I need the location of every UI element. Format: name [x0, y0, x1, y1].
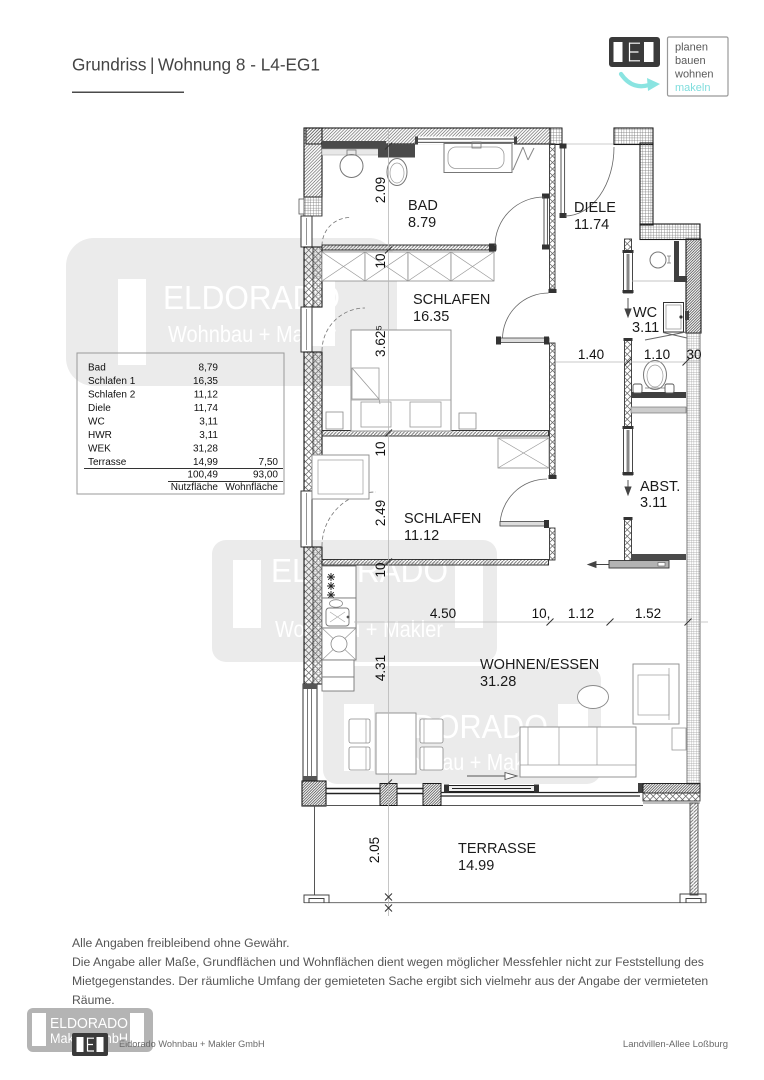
svg-text:wohnen: wohnen [674, 69, 714, 81]
svg-text:BAD: BAD [408, 198, 438, 214]
svg-text:2.09: 2.09 [373, 177, 388, 203]
svg-text:3.11: 3.11 [632, 320, 659, 336]
svg-text:Diele: Diele [88, 403, 111, 414]
svg-text:3.62⁵: 3.62⁵ [373, 325, 388, 357]
svg-text:100,49: 100,49 [187, 470, 218, 481]
svg-text:ELDORADO: ELDORADO [50, 1016, 128, 1032]
svg-text:2.05: 2.05 [367, 837, 382, 863]
svg-text:Wohnbau + Makler: Wohnbau + Makler [275, 616, 443, 642]
svg-text:Landvillen-Allee Loßburg: Landvillen-Allee Loßburg [623, 1039, 728, 1050]
svg-text:Schlafen 2: Schlafen 2 [88, 390, 136, 401]
svg-text:11,74: 11,74 [194, 403, 219, 414]
svg-text:8.79: 8.79 [408, 215, 436, 231]
svg-text:93,00: 93,00 [253, 470, 278, 481]
svg-text:4.31: 4.31 [373, 655, 388, 681]
svg-text:SCHLAFEN: SCHLAFEN [404, 511, 481, 527]
svg-text:3,11: 3,11 [199, 417, 218, 428]
svg-text:ABST.: ABST. [640, 479, 680, 495]
svg-text:3.11: 3.11 [640, 495, 667, 511]
svg-text:Eldorado Wohnbau + Makler GmbH: Eldorado Wohnbau + Makler GmbH [119, 1039, 265, 1049]
svg-text:makeln: makeln [675, 82, 710, 94]
svg-text:1.12: 1.12 [568, 606, 594, 621]
svg-text:11.74: 11.74 [574, 217, 609, 233]
svg-text:Schlafen 1: Schlafen 1 [88, 376, 136, 387]
svg-text:14.99: 14.99 [458, 858, 494, 874]
svg-text:Bad: Bad [88, 363, 106, 374]
svg-text:planen: planen [675, 42, 708, 54]
svg-text:HWR: HWR [88, 430, 112, 441]
svg-text:Grundriss | Wohnung 8 - L4-EG1: Grundriss | Wohnung 8 - L4-EG1 [72, 55, 320, 75]
svg-text:SCHLAFEN: SCHLAFEN [413, 292, 490, 308]
svg-text:WOHNEN/ESSEN: WOHNEN/ESSEN [480, 657, 599, 673]
svg-text:Alle Angaben freibleibend ohne: Alle Angaben freibleibend ohne Gewähr. [72, 936, 290, 950]
svg-text:31.28: 31.28 [480, 674, 516, 690]
svg-text:1.10: 1.10 [644, 347, 670, 362]
svg-text:30: 30 [686, 347, 701, 362]
svg-text:bauen: bauen [675, 55, 706, 67]
svg-text:WEK: WEK [88, 444, 111, 455]
svg-text:Terrasse: Terrasse [88, 457, 127, 468]
svg-text:14,99: 14,99 [193, 457, 218, 468]
svg-text:16,35: 16,35 [193, 376, 218, 387]
svg-text:11.12: 11.12 [404, 528, 439, 544]
svg-text:10: 10 [373, 562, 388, 577]
svg-text:11,12: 11,12 [194, 390, 219, 401]
svg-text:WC: WC [88, 417, 105, 428]
svg-text:10: 10 [373, 441, 388, 456]
svg-text:1.40: 1.40 [578, 347, 604, 362]
svg-text:Die Angabe aller Maße, Grundfl: Die Angabe aller Maße, Grundflächen und … [72, 955, 704, 969]
svg-text:10: 10 [373, 253, 388, 268]
svg-text:TERRASSE: TERRASSE [458, 841, 536, 857]
svg-text:16.35: 16.35 [413, 309, 449, 325]
svg-text:ELDORADO: ELDORADO [271, 552, 448, 589]
svg-text:Räume.: Räume. [72, 993, 115, 1007]
svg-text:10,: 10, [532, 606, 551, 621]
svg-text:2.49: 2.49 [373, 500, 388, 526]
svg-text:Mietgegenstandes. Der räumlich: Mietgegenstandes. Der räumliche Umfang d… [72, 974, 708, 988]
svg-text:4.50: 4.50 [430, 606, 456, 621]
svg-text:8,79: 8,79 [199, 363, 219, 374]
svg-text:Nutzfläche: Nutzfläche [171, 482, 219, 493]
svg-text:3,11: 3,11 [199, 430, 218, 441]
svg-text:Wohnfläche: Wohnfläche [225, 482, 278, 493]
svg-text:31,28: 31,28 [193, 444, 218, 455]
svg-text:7,50: 7,50 [259, 457, 279, 468]
svg-text:WC: WC [633, 305, 657, 321]
svg-text:DIELE: DIELE [574, 200, 616, 216]
svg-text:1.52: 1.52 [635, 606, 661, 621]
